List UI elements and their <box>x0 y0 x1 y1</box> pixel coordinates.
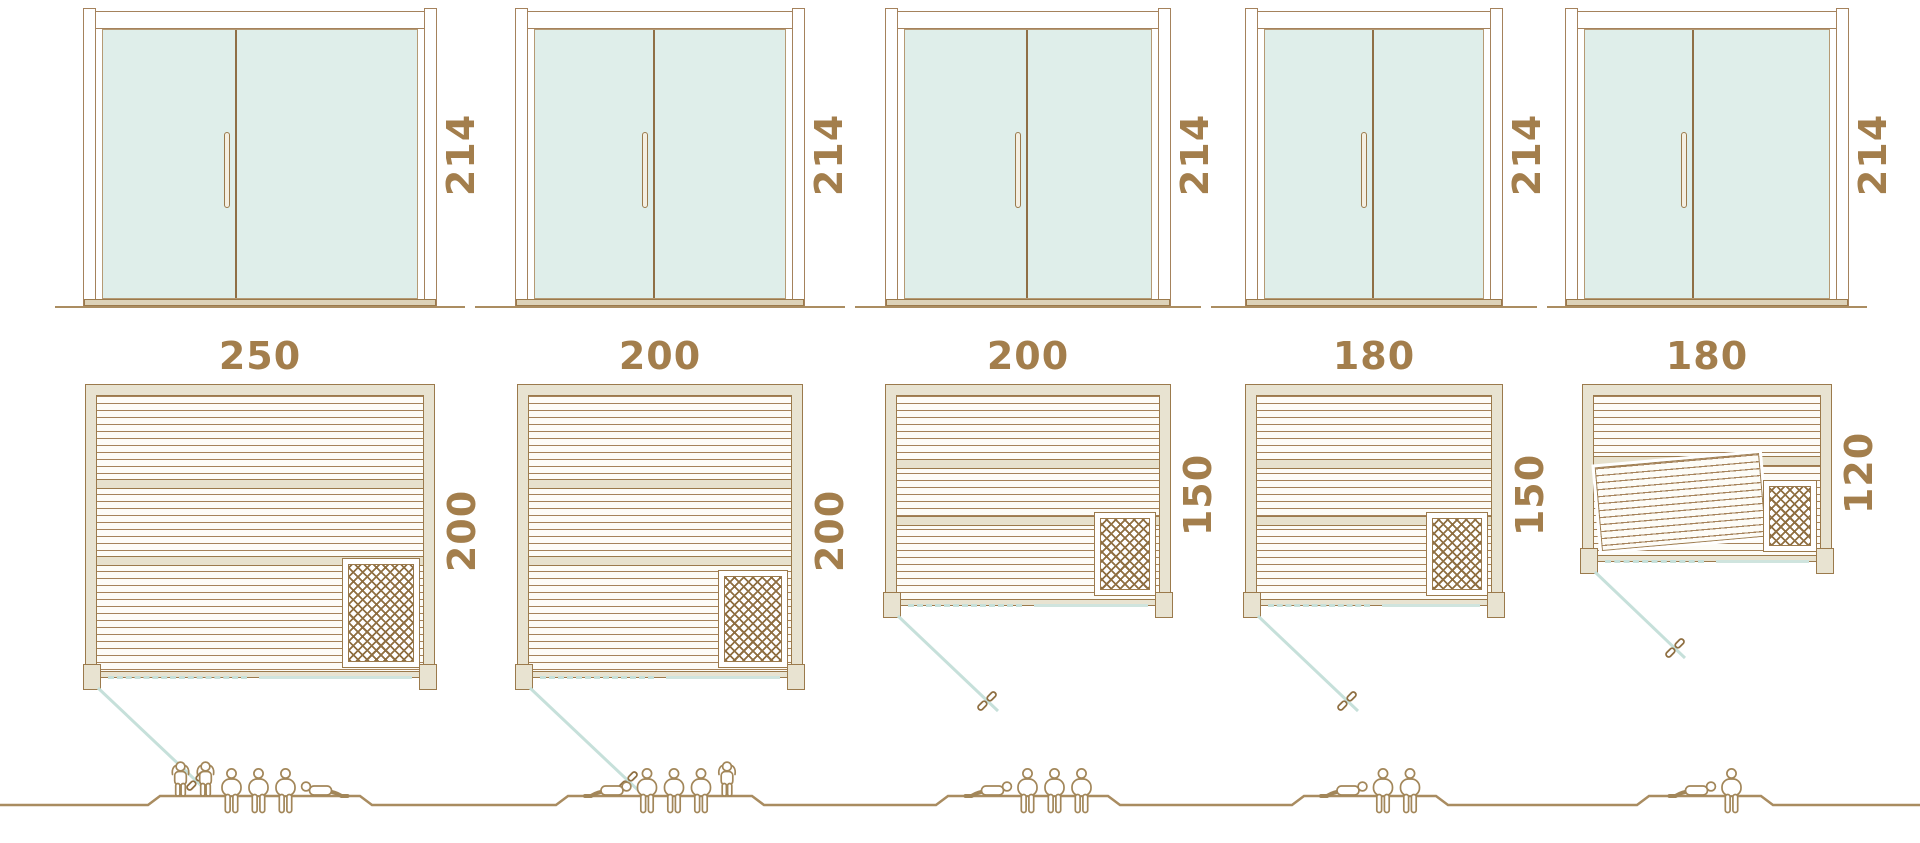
door-sill <box>1246 299 1502 306</box>
heater-icon <box>718 570 788 668</box>
capacity-group-2 <box>585 762 735 812</box>
door-post-left <box>885 8 898 306</box>
capacity-figure-lying <box>302 782 348 796</box>
door-swing <box>1590 570 1720 680</box>
door-sill <box>886 299 1170 306</box>
glass-front-dashed-line <box>540 676 654 679</box>
door-post-right <box>1836 8 1849 306</box>
door-glass <box>534 29 786 299</box>
door-sill <box>516 299 804 306</box>
capacity-figure-sitting <box>222 769 241 813</box>
door-handle-icon <box>1015 132 1021 208</box>
capacity-figure-sitting <box>638 769 657 813</box>
glass-front-solid-line <box>1034 604 1148 607</box>
sauna-floor-plan <box>1582 384 1832 562</box>
plan-depth-label: 120 <box>1837 432 1881 514</box>
door-frame-header <box>527 11 793 29</box>
capacity-figure-lying <box>1670 782 1716 796</box>
ground-line <box>1211 306 1537 308</box>
capacity-figure-sitting <box>1072 769 1091 813</box>
bench-planks <box>1593 395 1821 556</box>
sauna-unit-2: 214 200 200 <box>470 0 850 843</box>
door-elevation <box>83 8 437 306</box>
sauna-unit-4: 214 180 150 <box>1206 0 1542 843</box>
sauna-floor-plan <box>85 384 435 678</box>
capacity-figure-standing <box>719 762 735 796</box>
ground-line <box>855 306 1201 308</box>
bench-edge <box>1257 459 1491 469</box>
door-sill <box>84 299 436 306</box>
door-handle-icon <box>642 132 648 208</box>
bench-planks <box>528 395 792 672</box>
heater-icon <box>1763 480 1817 552</box>
door-leaf-divider <box>235 30 237 298</box>
capacity-figure-sitting <box>692 769 711 813</box>
tilted-bench <box>1595 453 1767 551</box>
door-handle-icon <box>1361 132 1367 208</box>
sauna-unit-3: 214 200 150 <box>850 0 1206 843</box>
door-glass <box>1264 29 1484 299</box>
door-frame-header <box>95 11 425 29</box>
capacity-figure-lying <box>585 782 631 796</box>
capacity-figure-sitting <box>1018 769 1037 813</box>
wall-stub-right <box>419 664 437 690</box>
wall-stub-right <box>1155 592 1173 618</box>
door-leaf-divider <box>1026 30 1028 298</box>
door-swing-line <box>1258 616 1358 711</box>
door-sill <box>1566 299 1848 306</box>
sauna-floor-plan <box>1245 384 1503 606</box>
door-handle-icon <box>224 132 230 208</box>
glass-front-solid-line <box>259 676 412 679</box>
door-swing-line <box>1595 572 1685 658</box>
glass-front-dashed-line <box>908 604 1022 607</box>
capacity-strip <box>0 743 1920 843</box>
sauna-unit-5: 214 180 120 <box>1542 0 1872 843</box>
glass-front-solid-line <box>1716 560 1809 563</box>
door-elevation <box>1565 8 1849 306</box>
door-height-label: 214 <box>807 114 851 196</box>
door-swing-line <box>898 616 998 711</box>
capacity-figure-sitting <box>276 769 295 813</box>
wall-stub-right <box>1487 592 1505 618</box>
bench-planks <box>896 395 1160 600</box>
plan-depth-label: 200 <box>808 490 852 572</box>
door-post-right <box>1158 8 1171 306</box>
door-glass <box>1584 29 1830 299</box>
ground-line <box>1547 306 1867 308</box>
door-glass <box>102 29 418 299</box>
door-frame-header <box>1577 11 1837 29</box>
door-handle-icon <box>1681 132 1687 208</box>
plan-width-label: 200 <box>470 334 850 378</box>
bench-planks <box>1256 395 1492 600</box>
sauna-unit-1: 214 250 200 <box>50 0 470 843</box>
capacity-figure-sitting <box>1722 769 1741 813</box>
door-frame-header <box>1257 11 1491 29</box>
bench-edge <box>529 479 791 489</box>
bench-planks <box>96 395 424 672</box>
capacity-figure-sitting <box>1401 769 1420 813</box>
sauna-floor-plan <box>517 384 803 678</box>
heater-icon <box>342 558 420 668</box>
door-leaf-divider <box>1372 30 1374 298</box>
door-elevation <box>885 8 1171 306</box>
wall-stub-right <box>1816 548 1834 574</box>
plan-width-label: 180 <box>1542 334 1872 378</box>
plan-width-label: 180 <box>1206 334 1542 378</box>
capacity-figure-sitting <box>1045 769 1064 813</box>
sauna-floor-plan <box>885 384 1171 606</box>
door-frame-header <box>897 11 1159 29</box>
ground-line <box>475 306 845 308</box>
door-leaf-divider <box>653 30 655 298</box>
plan-width-label: 200 <box>850 334 1206 378</box>
capacity-group-4 <box>1321 769 1420 813</box>
glass-front-dashed-line <box>108 676 247 679</box>
plan-width-label: 250 <box>50 334 470 378</box>
glass-front-dashed-line <box>1605 560 1704 563</box>
glass-front-solid-line <box>666 676 780 679</box>
heater-icon <box>1426 512 1488 596</box>
glass-front-solid-line <box>1382 604 1480 607</box>
door-post-right <box>424 8 437 306</box>
door-post-left <box>1245 8 1258 306</box>
door-post-right <box>1490 8 1503 306</box>
door-height-label: 214 <box>1851 114 1895 196</box>
door-post-left <box>83 8 96 306</box>
door-swing <box>893 614 1033 729</box>
bench-edge <box>897 459 1159 469</box>
door-elevation <box>1245 8 1503 306</box>
door-post-left <box>515 8 528 306</box>
door-elevation <box>515 8 805 306</box>
capacity-figure-standing <box>197 762 213 796</box>
capacity-figure-lying <box>966 782 1012 796</box>
door-post-right <box>792 8 805 306</box>
door-glass <box>904 29 1152 299</box>
glass-front-dashed-line <box>1268 604 1370 607</box>
ground-line <box>55 306 465 308</box>
door-leaf-divider <box>1692 30 1694 298</box>
capacity-figure-sitting <box>249 769 268 813</box>
capacity-figure-standing <box>172 762 188 796</box>
door-post-left <box>1565 8 1578 306</box>
bench-edge <box>529 556 791 566</box>
capacity-figure-lying <box>1321 782 1367 796</box>
heater-icon <box>1094 512 1156 596</box>
capacity-group-1 <box>172 762 347 812</box>
capacity-group-5 <box>1670 769 1742 813</box>
capacity-figure-sitting <box>1374 769 1393 813</box>
bench-edge <box>97 479 423 489</box>
capacity-group-3 <box>966 769 1092 813</box>
wall-stub-right <box>787 664 805 690</box>
door-swing <box>1253 614 1393 729</box>
capacity-figure-sitting <box>665 769 684 813</box>
